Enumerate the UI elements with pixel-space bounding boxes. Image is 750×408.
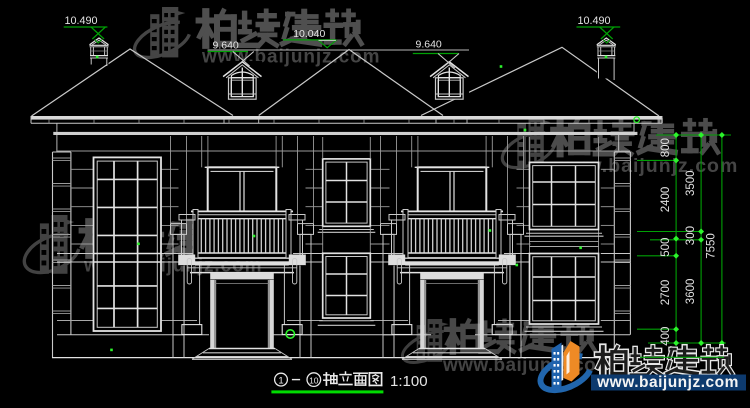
svg-text:400: 400 (660, 327, 672, 346)
svg-text:7550: 7550 (706, 233, 718, 259)
svg-text:9.640: 9.640 (213, 40, 239, 52)
svg-text:500: 500 (660, 238, 672, 257)
svg-text:10.040: 10.040 (293, 28, 325, 40)
svg-text:10: 10 (309, 375, 319, 385)
svg-text:3500: 3500 (685, 170, 697, 196)
svg-text:300: 300 (685, 226, 697, 245)
svg-text:9.640: 9.640 (416, 39, 442, 51)
svg-text:2400: 2400 (660, 187, 672, 213)
svg-text:2700: 2700 (660, 280, 672, 306)
svg-text:800: 800 (660, 138, 672, 157)
svg-text:10.490: 10.490 (578, 15, 611, 27)
svg-text:1: 1 (278, 376, 283, 387)
svg-text:10.490: 10.490 (65, 15, 98, 27)
svg-text:1:100: 1:100 (390, 373, 428, 390)
svg-text:3600: 3600 (685, 279, 697, 305)
svg-text:www.baijunjz.com: www.baijunjz.com (596, 374, 739, 391)
